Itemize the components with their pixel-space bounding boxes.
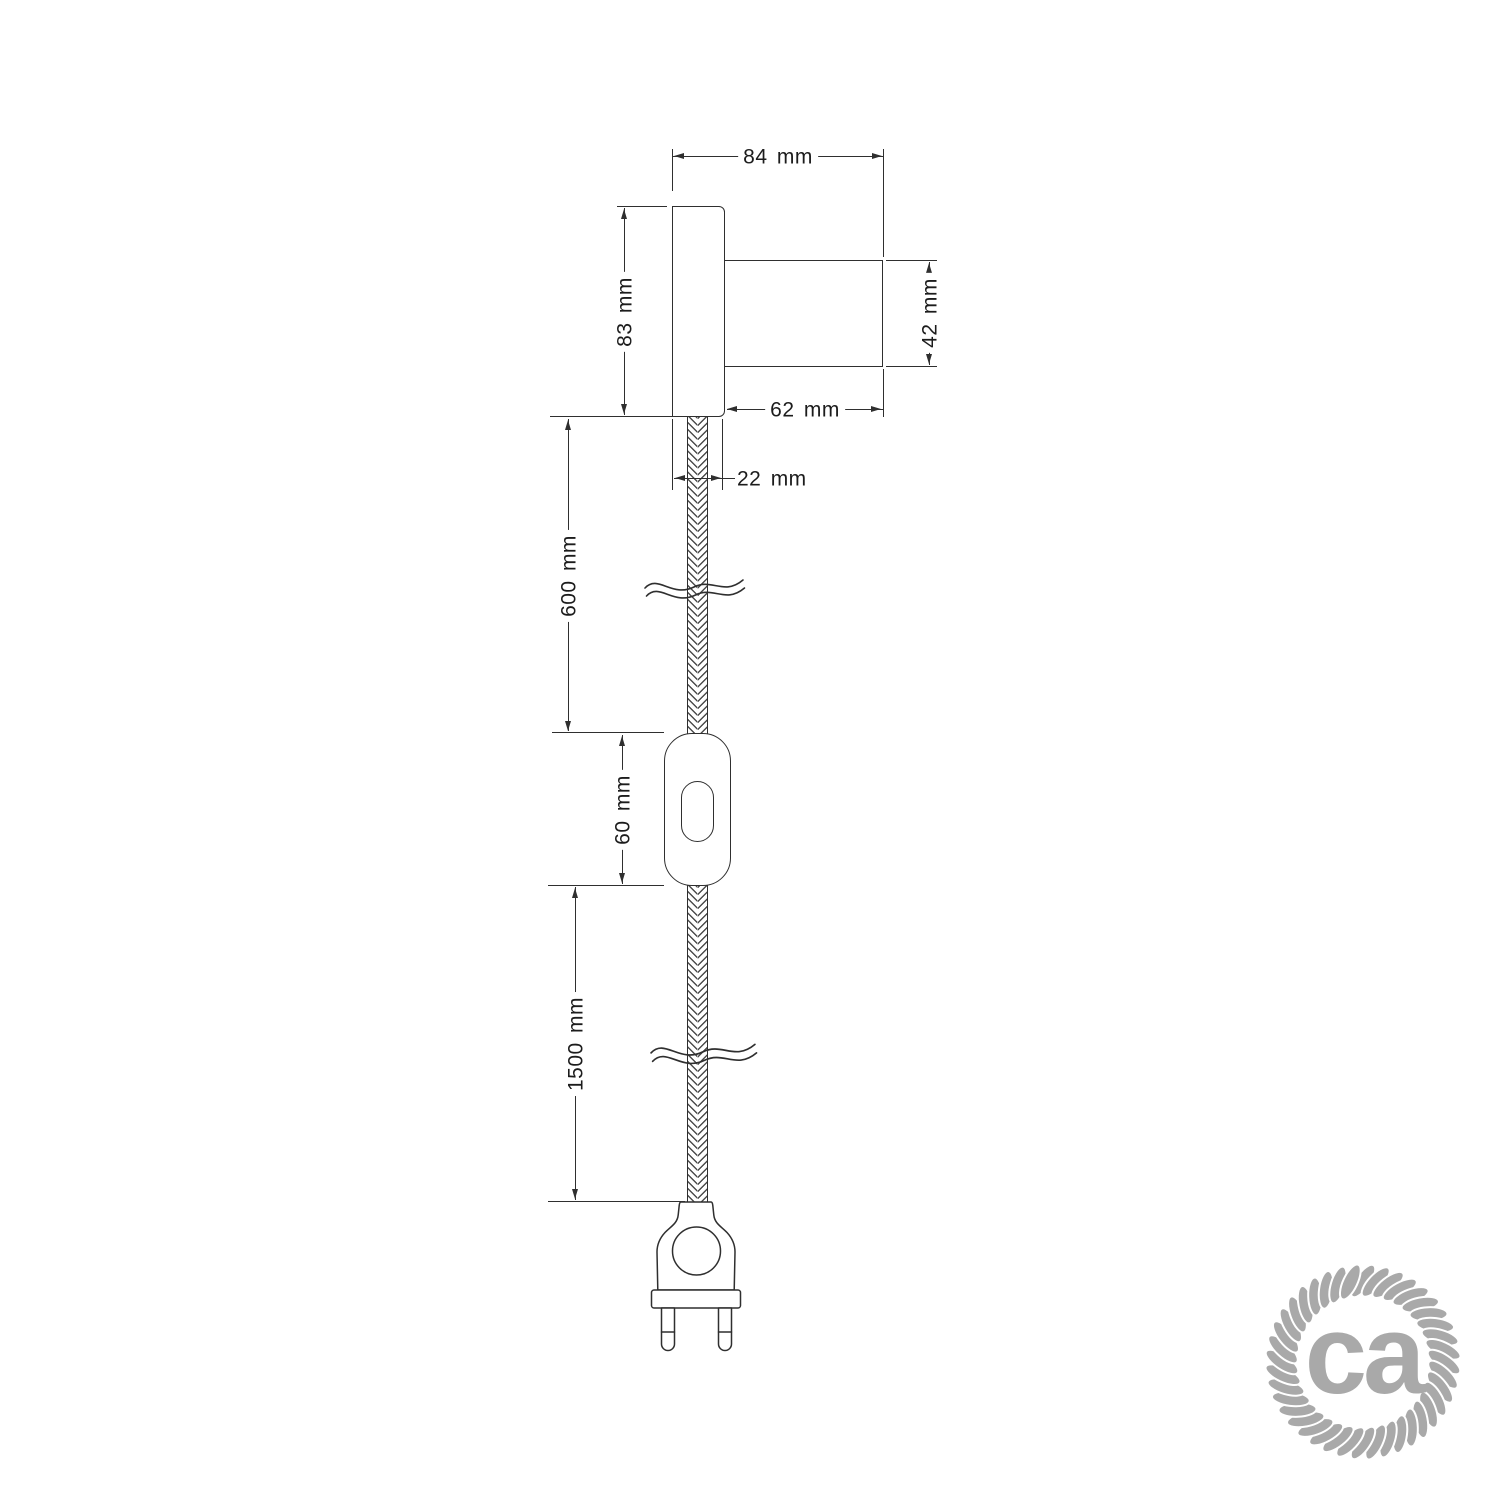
arrowhead-icon bbox=[621, 209, 627, 219]
euro-plug bbox=[645, 1199, 747, 1357]
dim-label-total-depth: 84 mm bbox=[738, 145, 818, 168]
arrowhead-icon bbox=[926, 263, 932, 273]
arrowhead-icon bbox=[926, 354, 932, 364]
wall-plate bbox=[672, 206, 725, 417]
arrowhead-icon bbox=[727, 406, 737, 412]
arrowhead-icon bbox=[675, 475, 685, 481]
arrowhead-icon bbox=[872, 153, 882, 159]
arrowhead-icon bbox=[871, 406, 881, 412]
lamp-socket bbox=[724, 260, 883, 367]
ext-line bbox=[548, 1201, 685, 1202]
dim-label-switch: 60 mm bbox=[611, 770, 634, 850]
dimensional-drawing: 84 mm 83 mm 42 mm 62 mm 22 mm 600 mm 60 … bbox=[0, 0, 1500, 1500]
ext-line bbox=[886, 366, 937, 367]
ext-line bbox=[672, 419, 673, 490]
leader-line bbox=[723, 478, 735, 479]
plug-base bbox=[652, 1290, 741, 1308]
arrowhead-icon bbox=[619, 736, 625, 746]
brand-logo: ca bbox=[1262, 1261, 1464, 1463]
switch-rocker bbox=[681, 781, 714, 842]
ext-line bbox=[883, 149, 884, 257]
ext-line bbox=[722, 419, 723, 490]
arrowhead-icon bbox=[565, 420, 571, 430]
plug-thumb-hole bbox=[673, 1227, 721, 1275]
arrowhead-icon bbox=[572, 1189, 578, 1199]
ext-line bbox=[552, 732, 664, 733]
arrowhead-icon bbox=[674, 153, 684, 159]
brand-logo-text: ca bbox=[1305, 1292, 1426, 1417]
dim-label-plate-height: 83 mm bbox=[613, 272, 636, 352]
arrowhead-icon bbox=[572, 888, 578, 898]
ext-line bbox=[886, 260, 937, 261]
cable-break-icon bbox=[644, 574, 744, 606]
cable-break-icon bbox=[650, 1038, 756, 1072]
braided-cable-upper bbox=[687, 410, 708, 735]
dim-label-socket-length: 62 mm bbox=[765, 398, 845, 421]
ext-line bbox=[883, 369, 884, 417]
arrowhead-icon bbox=[565, 721, 571, 731]
dim-label-plate-thickness: 22 mm bbox=[735, 467, 809, 490]
ext-line bbox=[548, 885, 664, 886]
ext-line bbox=[617, 206, 667, 207]
dim-label-upper-cable: 600 mm bbox=[557, 530, 580, 622]
plug-prong-left bbox=[662, 1308, 675, 1351]
arrowhead-icon bbox=[621, 404, 627, 414]
arrowhead-icon bbox=[619, 873, 625, 883]
ext-line bbox=[550, 416, 672, 417]
arrowhead-icon bbox=[711, 475, 721, 481]
plug-prong-right bbox=[719, 1308, 732, 1351]
dim-label-lower-cable: 1500 mm bbox=[564, 992, 587, 1096]
dim-label-socket-diameter: 42 mm bbox=[918, 273, 941, 353]
